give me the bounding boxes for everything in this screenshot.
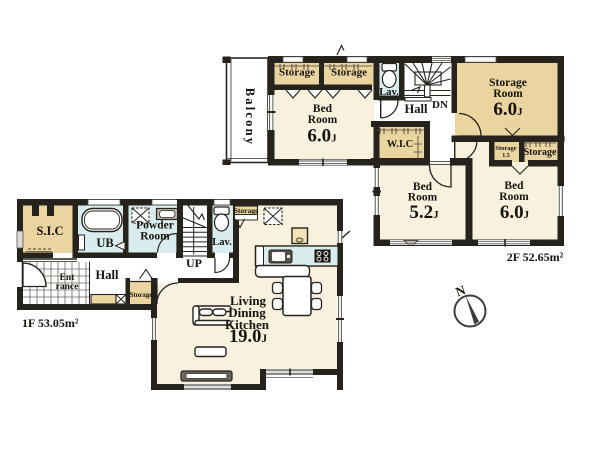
svg-text:Hall: Hall bbox=[405, 102, 428, 116]
svg-text:Storage: Storage bbox=[524, 147, 557, 158]
svg-text:S.I.C: S.I.C bbox=[36, 224, 63, 238]
svg-text:1.5: 1.5 bbox=[502, 153, 510, 159]
svg-text:rance: rance bbox=[56, 282, 79, 292]
svg-text:Lav.: Lav. bbox=[379, 87, 399, 98]
svg-text:2F 52.65m²: 2F 52.65m² bbox=[507, 250, 564, 264]
svg-text:UB: UB bbox=[96, 236, 113, 250]
svg-text:1F 53.05m²: 1F 53.05m² bbox=[22, 316, 79, 330]
svg-text:Room: Room bbox=[140, 231, 170, 243]
svg-text:Storage: Storage bbox=[279, 67, 315, 79]
svg-text:Balcony: Balcony bbox=[243, 88, 257, 146]
svg-text:Lav.: Lav. bbox=[212, 237, 232, 248]
svg-text:DN: DN bbox=[432, 99, 448, 111]
svg-text:Hall: Hall bbox=[96, 268, 119, 282]
svg-text:Room: Room bbox=[308, 114, 338, 126]
svg-text:Storage: Storage bbox=[234, 206, 259, 215]
svg-text:Storage: Storage bbox=[130, 291, 153, 299]
svg-text:Storage: Storage bbox=[495, 145, 516, 152]
svg-text:Storage: Storage bbox=[331, 67, 367, 79]
svg-text:W.I.C: W.I.C bbox=[387, 139, 413, 150]
svg-text:UP: UP bbox=[186, 256, 202, 270]
